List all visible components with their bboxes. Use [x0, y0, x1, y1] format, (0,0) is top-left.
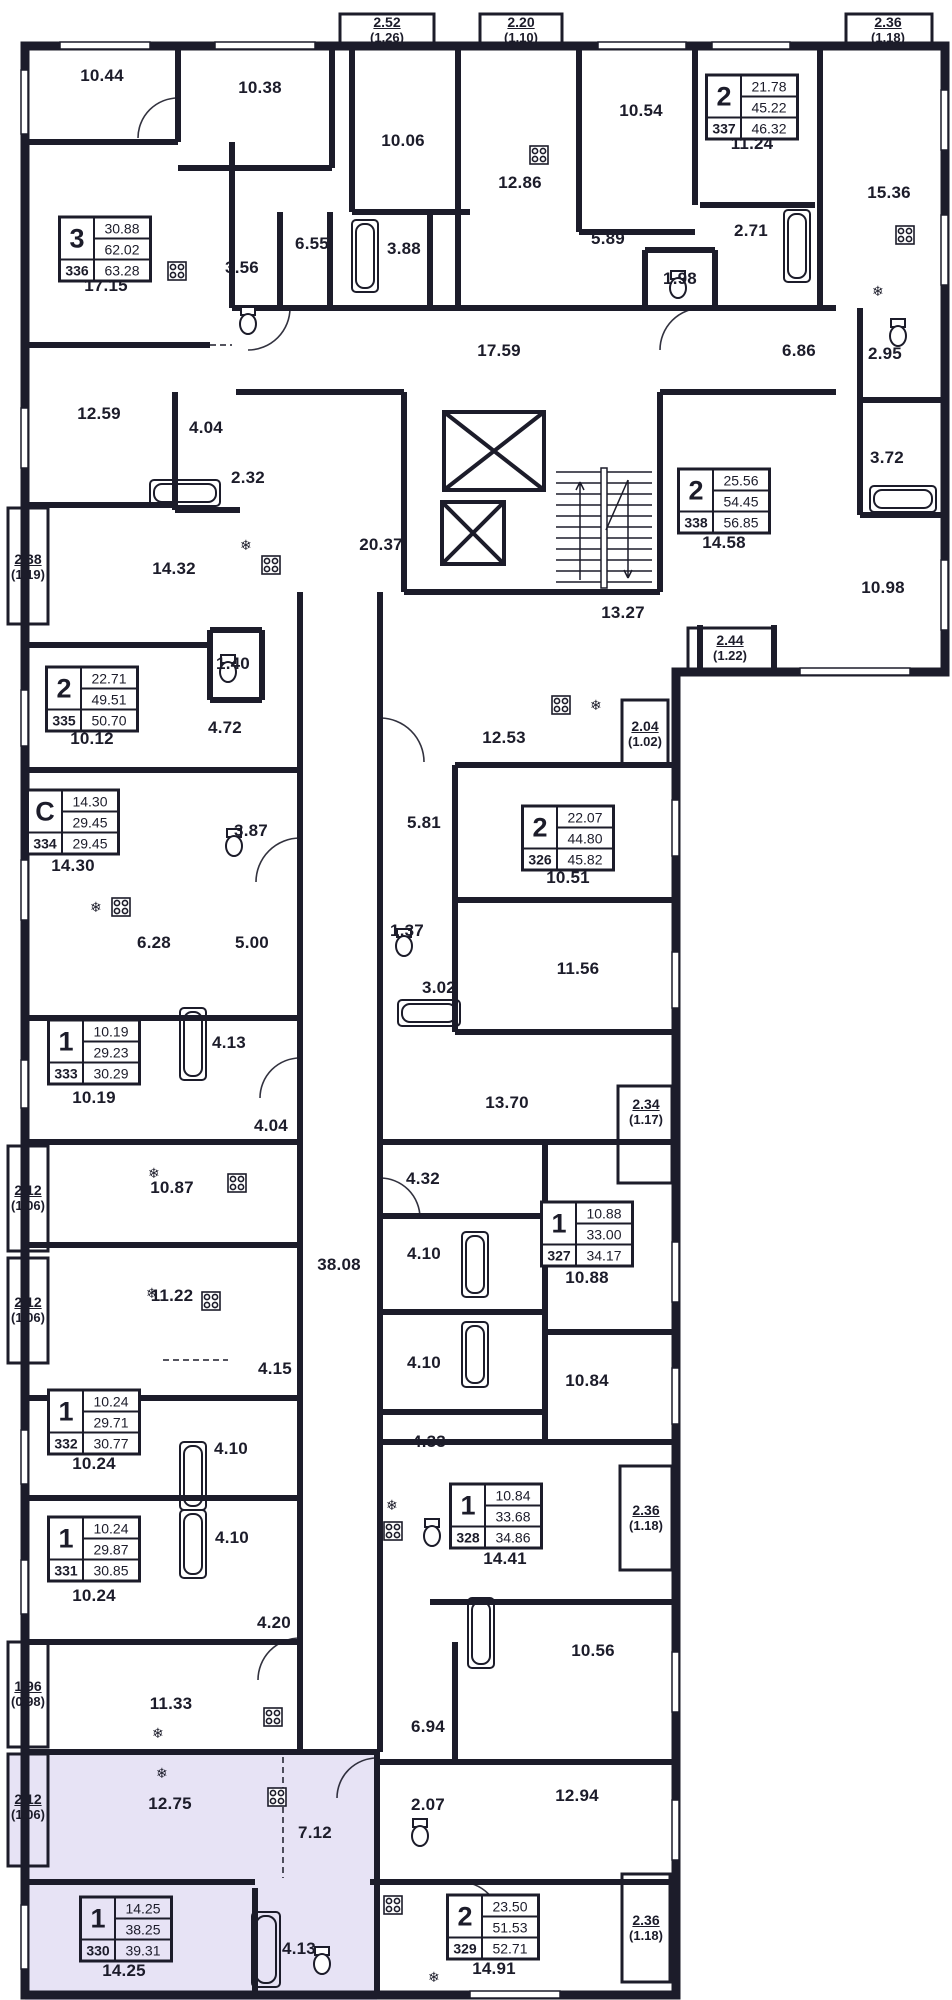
room-area-label: 15.36	[867, 183, 911, 203]
room-area-label: 3.56	[225, 258, 259, 278]
balcony-reduced-area-value: (1.10)	[504, 30, 538, 45]
apartment-info-box[interactable]: 2 23.50 51.53 329 52.71	[446, 1894, 540, 1961]
apartment-total-area: 63.28	[94, 260, 150, 281]
fridge-icon: ❄	[240, 538, 252, 554]
apartment-living-area: 10.88	[576, 1203, 632, 1224]
apartment-rooms-type: 2	[523, 807, 557, 849]
apartment-info-box[interactable]: 3 30.88 62.02 336 63.28	[58, 216, 152, 283]
room-area-label: 12.59	[77, 404, 121, 424]
room-area-label: 4.33	[412, 1432, 446, 1452]
apartment-living-area: 14.30	[62, 791, 118, 812]
room-area-label: 13.70	[485, 1093, 529, 1113]
floor-plan-walls: ❄ ❄ ❄ ❄ ❄ ❄ ❄ ❄ ❄ ❄ ❄	[0, 0, 952, 2000]
balcony-area-label: 2.44 (1.22)	[713, 633, 747, 663]
room-area-label: 10.98	[861, 578, 905, 598]
balcony-area-value: 2.12	[11, 1295, 45, 1310]
apartment-info-box[interactable]: 1 10.19 29.23 333 30.29	[47, 1019, 141, 1086]
apartment-area: 33.00	[576, 1224, 632, 1245]
room-area-label: 11.22	[151, 1286, 194, 1306]
floor-plan: ❄ ❄ ❄ ❄ ❄ ❄ ❄ ❄ ❄ ❄ ❄ 10.4410.3810.0610.…	[0, 0, 952, 2000]
balcony-reduced-area-value: (1.06)	[11, 1807, 45, 1822]
balcony-reduced-area-value: (1.02)	[628, 734, 662, 749]
apartment-number: 327	[542, 1245, 576, 1266]
balcony-area-label: 2.20 (1.10)	[504, 15, 538, 45]
apartment-info-box[interactable]: 2 21.78 45.22 337 46.32	[705, 74, 799, 141]
apartment-info-box[interactable]: 1 14.25 38.25 330 39.31	[79, 1896, 173, 1963]
apartment-total-area: 45.82	[557, 849, 613, 870]
room-area-label: 6.94	[411, 1717, 445, 1737]
room-area-label: 6.28	[137, 933, 171, 953]
room-area-label: 38.08	[317, 1255, 361, 1275]
apartment-info-box[interactable]: 2 22.07 44.80 326 45.82	[521, 805, 615, 872]
apartment-area: 51.53	[482, 1917, 538, 1938]
apartment-info-box[interactable]: 1 10.88 33.00 327 34.17	[540, 1201, 634, 1268]
apartment-rooms-type: 2	[679, 470, 713, 512]
room-area-label: 5.00	[235, 933, 269, 953]
apartment-total-area: 50.70	[81, 710, 137, 731]
room-area-label: 4.10	[215, 1528, 249, 1548]
apartment-rooms-type: 3	[60, 218, 94, 260]
apartment-number: 334	[28, 833, 62, 854]
balcony-reduced-area-value: (1.18)	[629, 1928, 663, 1943]
room-area-label: 4.20	[257, 1613, 291, 1633]
apartment-area: 29.71	[83, 1412, 139, 1433]
apartment-living-area: 23.50	[482, 1896, 538, 1917]
room-area-label: 3.02	[422, 978, 456, 998]
apartment-number: 326	[523, 849, 557, 870]
room-area-label: 10.06	[381, 131, 425, 151]
room-area-label: 12.94	[555, 1786, 599, 1806]
balcony-area-label: 2.04 (1.02)	[628, 719, 662, 749]
apartment-number: 335	[47, 710, 81, 731]
apartment-info-box[interactable]: 2 22.71 49.51 335 50.70	[45, 666, 139, 733]
apartment-info-box[interactable]: 1 10.24 29.87 331 30.85	[47, 1516, 141, 1583]
apartment-area: 62.02	[94, 239, 150, 260]
room-area-label: 20.37	[359, 535, 403, 555]
apartment-living-area: 14.25	[115, 1898, 171, 1919]
room-area-label: 10.56	[571, 1641, 615, 1661]
room-area-label: 10.54	[619, 101, 663, 121]
apartment-living-area: 30.88	[94, 218, 150, 239]
room-area-label: 10.44	[80, 66, 124, 86]
balcony-area-label: 2.36 (1.18)	[871, 15, 905, 45]
apartment-rooms-type: 1	[49, 1391, 83, 1433]
fridge-icon: ❄	[872, 284, 884, 300]
room-area-label: 12.75	[148, 1794, 192, 1814]
balcony-area-label: 2.34 (1.17)	[629, 1097, 663, 1127]
balcony-area-value: 2.04	[628, 719, 662, 734]
apartment-total-area: 52.71	[482, 1938, 538, 1959]
apartment-info-box[interactable]: 2 25.56 54.45 338 56.85	[677, 468, 771, 535]
balcony-reduced-area-value: (1.19)	[11, 567, 45, 582]
room-area-label: 11.56	[557, 959, 600, 979]
room-area-label: 1.98	[663, 269, 697, 289]
room-area-label: 6.55	[295, 234, 329, 254]
balcony-area-value: 2.20	[504, 15, 538, 30]
room-area-label: 14.91	[472, 1959, 516, 1979]
apartment-number: 328	[451, 1527, 485, 1548]
apartment-total-area: 56.85	[713, 512, 769, 533]
room-area-label: 4.13	[212, 1033, 246, 1053]
apartment-area: 29.23	[83, 1042, 139, 1063]
room-area-label: 4.10	[407, 1244, 441, 1264]
apartment-area: 33.68	[485, 1506, 541, 1527]
apartment-rooms-type: С	[28, 791, 62, 833]
apartment-number: 338	[679, 512, 713, 533]
balcony-area-value: 2.12	[11, 1792, 45, 1807]
balcony-area-label: 2.12 (1.06)	[11, 1183, 45, 1213]
room-area-label: 3.72	[870, 448, 904, 468]
fridge-icon: ❄	[428, 1970, 440, 1986]
apartment-number: 332	[49, 1433, 83, 1454]
apartment-living-area: 22.07	[557, 807, 613, 828]
balcony-area-label: 2.12 (1.06)	[11, 1295, 45, 1325]
apartment-number: 331	[49, 1560, 83, 1581]
room-area-label: 4.13	[282, 1939, 316, 1959]
balcony-area-value: 2.38	[11, 552, 45, 567]
fridge-icon: ❄	[152, 1726, 164, 1742]
room-area-label: 10.88	[565, 1268, 609, 1288]
apartment-total-area: 34.17	[576, 1245, 632, 1266]
apartment-number: 329	[448, 1938, 482, 1959]
stairs-icon	[556, 468, 652, 588]
balcony-reduced-area-value: (1.18)	[871, 30, 905, 45]
fridge-icon: ❄	[90, 900, 102, 916]
apartment-number: 330	[81, 1940, 115, 1961]
apartment-rooms-type: 1	[49, 1021, 83, 1063]
apartment-area: 29.45	[62, 812, 118, 833]
room-area-label: 10.24	[72, 1454, 116, 1474]
balcony-area-value: 2.34	[629, 1097, 663, 1112]
apartment-area: 54.45	[713, 491, 769, 512]
elevator-shaft-icon	[442, 412, 544, 564]
room-area-label: 13.27	[601, 603, 645, 623]
apartment-info-box[interactable]: С 14.30 29.45 334 29.45	[26, 789, 120, 856]
room-area-label: 7.12	[298, 1823, 332, 1843]
balcony-reduced-area-value: (1.22)	[713, 648, 747, 663]
room-area-label: 1.40	[216, 654, 250, 674]
room-area-label: 1.37	[390, 921, 424, 941]
apartment-rooms-type: 1	[542, 1203, 576, 1245]
apartment-living-area: 25.56	[713, 470, 769, 491]
room-area-label: 10.87	[150, 1178, 194, 1198]
apartment-number: 336	[60, 260, 94, 281]
apartment-total-area: 30.77	[83, 1433, 139, 1454]
apartment-total-area: 29.45	[62, 833, 118, 854]
apartment-total-area: 46.32	[741, 118, 797, 139]
room-area-label: 17.59	[477, 341, 521, 361]
room-area-label: 12.86	[498, 173, 542, 193]
apartment-area: 29.87	[83, 1539, 139, 1560]
apartment-area: 45.22	[741, 97, 797, 118]
room-area-label: 14.32	[152, 559, 196, 579]
balcony-area-label: 2.52 (1.26)	[370, 15, 404, 45]
apartment-living-area: 10.24	[83, 1391, 139, 1412]
balcony-area-value: 2.36	[629, 1503, 663, 1518]
apartment-total-area: 30.85	[83, 1560, 139, 1581]
apartment-total-area: 34.86	[485, 1527, 541, 1548]
apartment-rooms-type: 1	[81, 1898, 115, 1940]
apartment-living-area: 10.24	[83, 1518, 139, 1539]
balcony-reduced-area-value: (1.18)	[629, 1518, 663, 1533]
room-area-label: 14.30	[51, 856, 95, 876]
room-area-label: 5.81	[407, 813, 441, 833]
apartment-rooms-type: 1	[451, 1485, 485, 1527]
fridge-icon: ❄	[156, 1766, 168, 1782]
room-area-label: 4.10	[407, 1353, 441, 1373]
room-area-label: 10.19	[72, 1088, 116, 1108]
room-area-label: 4.72	[208, 718, 242, 738]
room-area-label: 4.15	[258, 1359, 292, 1379]
room-area-label: 3.87	[234, 821, 268, 841]
apartment-total-area: 30.29	[83, 1063, 139, 1084]
balcony-area-value: 2.36	[629, 1913, 663, 1928]
balcony-reduced-area-value: (1.06)	[11, 1310, 45, 1325]
apartment-living-area: 22.71	[81, 668, 137, 689]
room-area-label: 14.58	[702, 533, 746, 553]
balcony-area-label: 2.12 (1.06)	[11, 1792, 45, 1822]
balcony-area-value: 1.96	[11, 1679, 45, 1694]
apartment-area: 49.51	[81, 689, 137, 710]
apartment-number: 337	[707, 118, 741, 139]
room-area-label: 2.95	[868, 344, 902, 364]
room-area-label: 6.86	[782, 341, 816, 361]
apartment-rooms-type: 2	[47, 668, 81, 710]
room-area-label: 10.24	[72, 1586, 116, 1606]
apartment-area: 38.25	[115, 1919, 171, 1940]
room-area-label: 12.53	[482, 728, 526, 748]
room-area-label: 4.04	[254, 1116, 288, 1136]
apartment-info-box[interactable]: 1 10.84 33.68 328 34.86	[449, 1483, 543, 1550]
room-area-label: 14.25	[102, 1961, 146, 1981]
apartment-rooms-type: 2	[448, 1896, 482, 1938]
room-area-label: 2.32	[231, 468, 265, 488]
balcony-reduced-area-value: (1.06)	[11, 1198, 45, 1213]
balcony-area-value: 2.12	[11, 1183, 45, 1198]
balcony-area-value: 2.44	[713, 633, 747, 648]
balcony-area-label: 2.36 (1.18)	[629, 1503, 663, 1533]
fridge-icon: ❄	[590, 698, 602, 714]
room-area-label: 10.38	[238, 78, 282, 98]
room-area-label: 11.33	[150, 1694, 193, 1714]
room-area-label: 4.10	[214, 1439, 248, 1459]
apartment-rooms-type: 2	[707, 76, 741, 118]
balcony-area-label: 1.96 (0.98)	[11, 1679, 45, 1709]
door-arc	[138, 98, 702, 1922]
apartment-living-area: 10.84	[485, 1485, 541, 1506]
balcony-area-label: 2.38 (1.19)	[11, 552, 45, 582]
balcony-area-label: 2.36 (1.18)	[629, 1913, 663, 1943]
apartment-living-area: 10.19	[83, 1021, 139, 1042]
room-area-label: 3.88	[387, 239, 421, 259]
apartment-area: 44.80	[557, 828, 613, 849]
fridge-icon: ❄	[386, 1498, 398, 1514]
apartment-number: 333	[49, 1063, 83, 1084]
apartment-info-box[interactable]: 1 10.24 29.71 332 30.77	[47, 1389, 141, 1456]
room-area-label: 4.04	[189, 418, 223, 438]
room-area-label: 10.84	[565, 1371, 609, 1391]
balcony-reduced-area-value: (1.26)	[370, 30, 404, 45]
apartment-rooms-type: 1	[49, 1518, 83, 1560]
apartment-living-area: 21.78	[741, 76, 797, 97]
balcony-reduced-area-value: (1.17)	[629, 1112, 663, 1127]
apartment-total-area: 39.31	[115, 1940, 171, 1961]
room-area-label: 14.41	[483, 1549, 527, 1569]
room-area-label: 4.32	[406, 1169, 440, 1189]
room-area-label: 2.71	[734, 221, 768, 241]
balcony-area-value: 2.52	[370, 15, 404, 30]
balcony-reduced-area-value: (0.98)	[11, 1694, 45, 1709]
room-area-label: 2.07	[411, 1795, 445, 1815]
balcony-area-value: 2.36	[871, 15, 905, 30]
room-area-label: 5.89	[591, 229, 625, 249]
